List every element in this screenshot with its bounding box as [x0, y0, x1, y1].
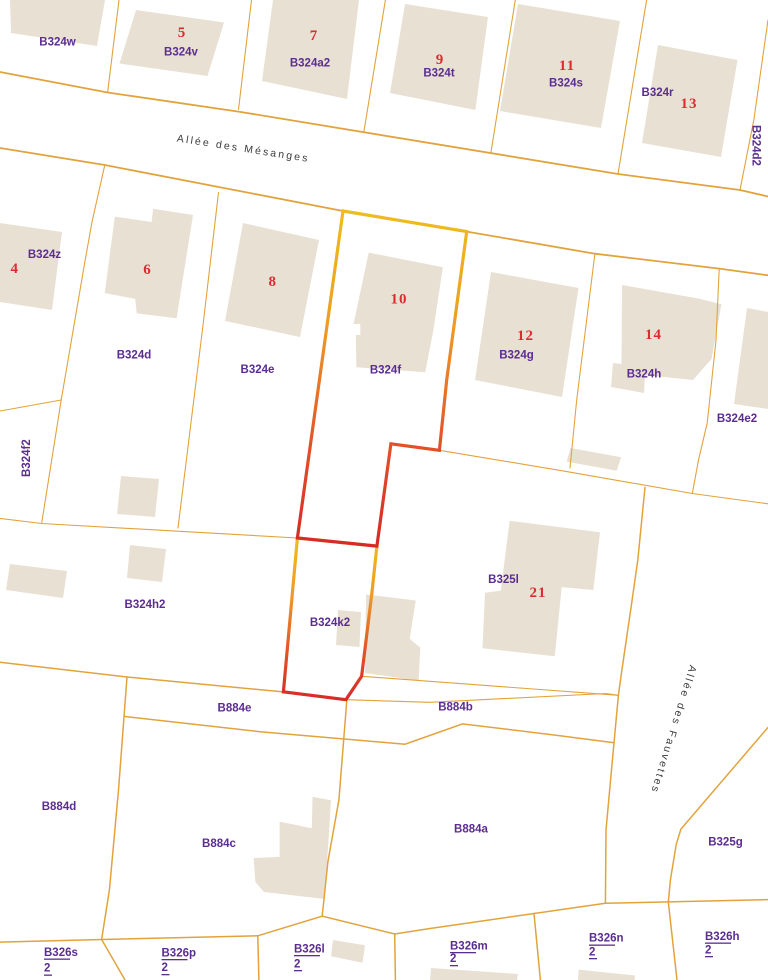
svg-text:B325g: B325g: [708, 837, 743, 849]
svg-text:B326p: B326p: [162, 948, 197, 960]
svg-text:8: 8: [269, 274, 278, 290]
svg-text:B884a: B884a: [454, 824, 488, 836]
svg-text:B884d: B884d: [42, 801, 77, 813]
svg-text:B324a2: B324a2: [290, 58, 330, 70]
svg-text:B324g: B324g: [499, 350, 534, 362]
svg-text:B324h: B324h: [627, 369, 662, 381]
svg-text:B324h2: B324h2: [125, 599, 166, 611]
svg-text:4: 4: [11, 261, 20, 277]
svg-text:12: 12: [517, 328, 534, 344]
svg-text:10: 10: [391, 292, 408, 308]
svg-text:B324e: B324e: [241, 364, 275, 376]
svg-text:B324t: B324t: [423, 68, 454, 80]
svg-text:B326m: B326m: [450, 941, 488, 953]
svg-text:B324r: B324r: [642, 87, 674, 99]
svg-text:2: 2: [162, 962, 168, 974]
svg-text:B884e: B884e: [218, 703, 252, 715]
svg-text:B324d: B324d: [117, 350, 152, 362]
svg-text:2: 2: [294, 959, 300, 971]
svg-text:B884b: B884b: [438, 702, 473, 714]
svg-text:B324f: B324f: [370, 365, 401, 377]
svg-text:B324v: B324v: [164, 47, 198, 59]
svg-text:2: 2: [589, 947, 595, 959]
svg-text:B324s: B324s: [549, 78, 583, 90]
svg-text:21: 21: [530, 585, 547, 601]
svg-text:B325l: B325l: [488, 574, 519, 586]
svg-text:B326s: B326s: [44, 947, 78, 959]
svg-text:2: 2: [705, 945, 711, 957]
svg-text:B884c: B884c: [202, 838, 236, 850]
svg-text:13: 13: [681, 96, 698, 112]
svg-text:B324f2: B324f2: [21, 439, 33, 477]
svg-text:B326h: B326h: [705, 931, 740, 943]
svg-text:11: 11: [559, 58, 575, 74]
svg-text:B324w: B324w: [39, 37, 75, 49]
svg-text:5: 5: [178, 25, 187, 41]
svg-text:B326l: B326l: [294, 944, 325, 956]
svg-text:2: 2: [450, 953, 456, 965]
svg-text:7: 7: [310, 28, 319, 44]
svg-text:B326n: B326n: [589, 933, 624, 945]
svg-text:B324e2: B324e2: [717, 413, 757, 425]
svg-text:14: 14: [645, 327, 662, 343]
svg-text:B324k2: B324k2: [310, 617, 350, 629]
svg-text:B324d2: B324d2: [750, 125, 762, 166]
svg-text:6: 6: [143, 262, 152, 278]
svg-text:9: 9: [436, 52, 445, 68]
svg-text:2: 2: [44, 963, 50, 975]
svg-text:B324z: B324z: [28, 249, 61, 261]
